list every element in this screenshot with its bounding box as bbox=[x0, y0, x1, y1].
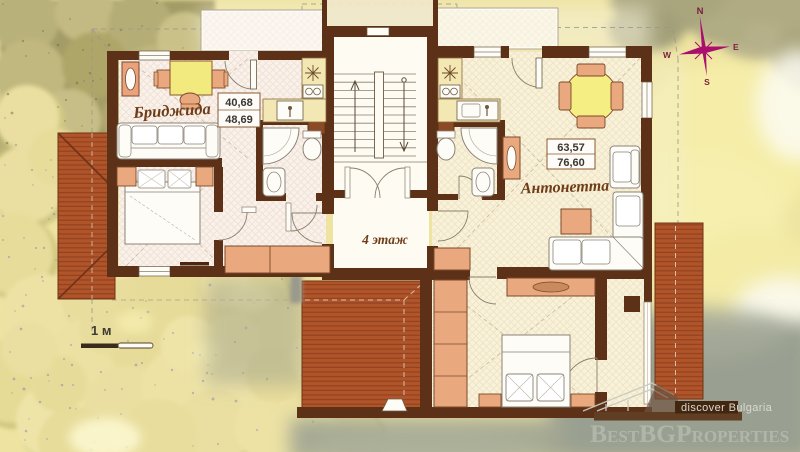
svg-text:40,68: 40,68 bbox=[225, 97, 253, 109]
svg-text:discover Bulgaria: discover Bulgaria bbox=[681, 402, 773, 414]
svg-text:4 этаж: 4 этаж bbox=[361, 232, 408, 247]
svg-text:N: N bbox=[697, 6, 704, 17]
svg-text:76,60: 76,60 bbox=[557, 157, 585, 169]
svg-text:S: S bbox=[704, 77, 710, 87]
svg-text:1 м: 1 м bbox=[91, 323, 111, 338]
svg-text:63,57: 63,57 bbox=[557, 142, 585, 154]
svg-text:W: W bbox=[663, 50, 672, 60]
svg-text:E: E bbox=[733, 42, 739, 52]
svg-text:48,69: 48,69 bbox=[225, 114, 253, 126]
svg-text:Антонетта: Антонетта bbox=[520, 177, 610, 197]
